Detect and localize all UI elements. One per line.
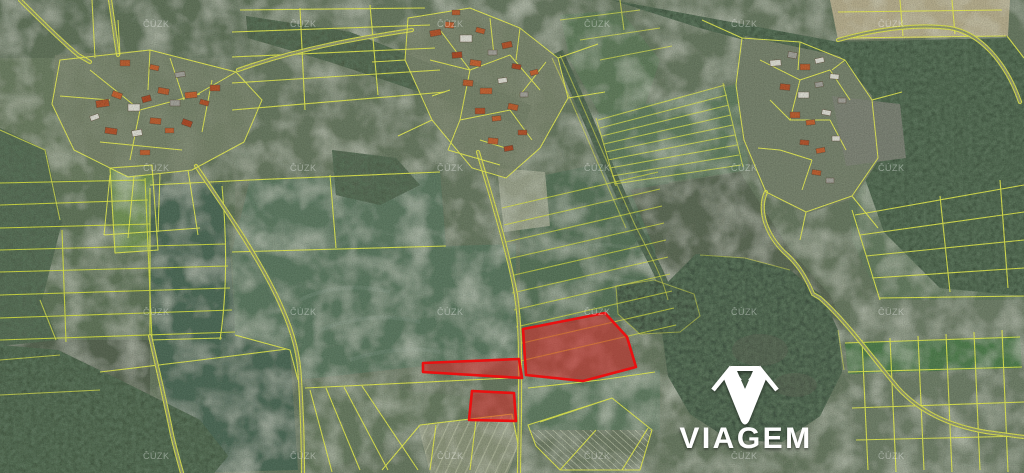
cuzk-watermark: ČÚZK — [878, 19, 905, 29]
cuzk-watermark: ČÚZK — [584, 307, 611, 317]
map-viewport[interactable]: ČÚZKČÚZKČÚZKČÚZKČÚZKČÚZKČÚZKČÚZKČÚZKČÚZK… — [0, 0, 1024, 473]
cuzk-watermark: ČÚZK — [290, 307, 317, 317]
cuzk-watermark: ČÚZK — [437, 451, 464, 461]
cuzk-watermark: ČÚZK — [731, 163, 758, 173]
cuzk-watermark: ČÚZK — [878, 451, 905, 461]
cuzk-watermark: ČÚZK — [143, 451, 170, 461]
cuzk-watermark: ČÚZK — [878, 307, 905, 317]
cuzk-watermark: ČÚZK — [437, 19, 464, 29]
cuzk-watermark: ČÚZK — [290, 163, 317, 173]
cuzk-watermark: ČÚZK — [437, 163, 464, 173]
cuzk-watermark: ČÚZK — [143, 19, 170, 29]
cuzk-watermark: ČÚZK — [731, 19, 758, 29]
parcel-small[interactable] — [469, 391, 516, 421]
cuzk-watermark: ČÚZK — [143, 163, 170, 173]
cuzk-watermark: ČÚZK — [878, 163, 905, 173]
cuzk-watermark: ČÚZK — [290, 19, 317, 29]
cuzk-watermark: ČÚZK — [584, 451, 611, 461]
cuzk-watermark: ČÚZK — [731, 307, 758, 317]
cuzk-watermark: ČÚZK — [584, 19, 611, 29]
cuzk-watermark: ČÚZK — [143, 307, 170, 317]
cuzk-watermark: ČÚZK — [437, 307, 464, 317]
brand-wordmark: VIAGEM — [679, 422, 812, 455]
cuzk-watermark: ČÚZK — [584, 163, 611, 173]
cuzk-watermark: ČÚZK — [290, 451, 317, 461]
cadastral-map[interactable]: ČÚZKČÚZKČÚZKČÚZKČÚZKČÚZKČÚZKČÚZKČÚZKČÚZK… — [0, 0, 1024, 473]
